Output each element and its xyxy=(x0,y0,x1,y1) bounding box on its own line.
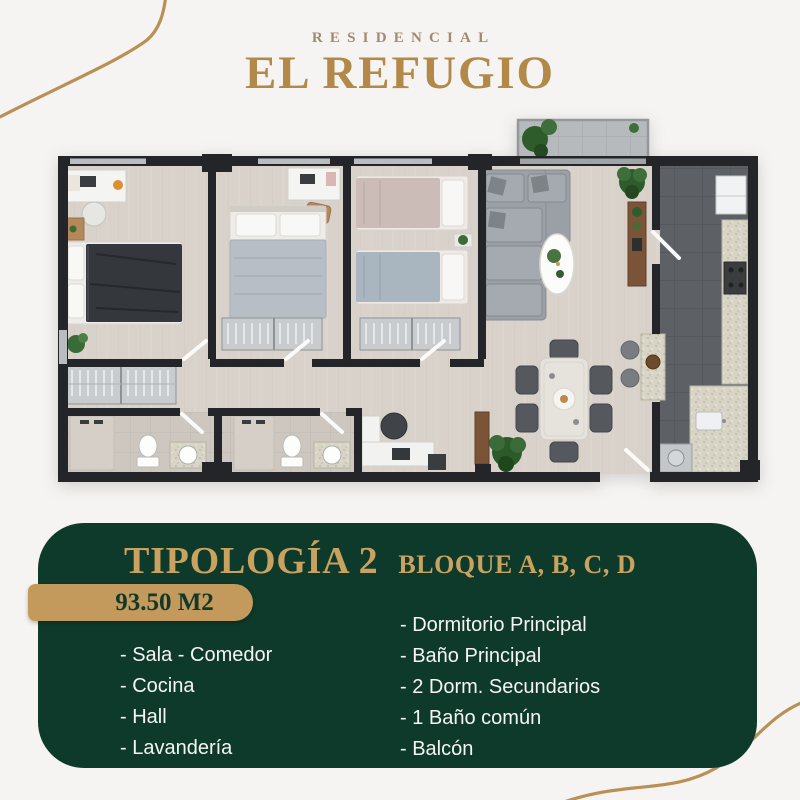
feature-item: - Cocina xyxy=(120,671,272,702)
info-card: TIPOLOGÍA 2 BLOQUE A, B, C, D 93.50 M2 -… xyxy=(38,523,757,768)
wood-panel xyxy=(475,412,489,464)
fridge xyxy=(716,176,746,214)
feature-item: - Dormitorio Principal xyxy=(400,610,600,641)
logo-subtitle: RESIDENCIAL xyxy=(0,30,800,47)
stove xyxy=(724,262,746,294)
master-bed xyxy=(64,242,182,324)
card-title-row: TIPOLOGÍA 2 BLOQUE A, B, C, D xyxy=(124,539,636,583)
toilet xyxy=(283,435,301,457)
desk-chair xyxy=(82,202,106,226)
logo-title: EL REFUGIO xyxy=(0,49,800,98)
console xyxy=(628,202,646,286)
feature-item: - 1 Baño común xyxy=(400,703,600,734)
bedroom-3 xyxy=(356,176,472,350)
feature-item: - Baño Principal xyxy=(400,641,600,672)
twin-bed-a xyxy=(356,176,468,230)
block-subtitle: BLOQUE A, B, C, D xyxy=(398,550,636,580)
shower xyxy=(70,416,114,470)
logo: RESIDENCIAL EL REFUGIO xyxy=(0,30,800,98)
area-badge: 93.50 M2 xyxy=(28,584,253,621)
bed xyxy=(230,206,326,318)
closet xyxy=(360,318,460,350)
closet xyxy=(222,318,322,350)
typology-title: TIPOLOGÍA 2 xyxy=(124,539,378,583)
features-list-left: - Sala - Comedor - Cocina - Hall - Lavan… xyxy=(120,640,272,764)
office-chair xyxy=(381,413,407,439)
feature-item: - Hall xyxy=(120,702,272,733)
counter xyxy=(722,220,748,384)
feature-item: - 2 Dorm. Secundarios xyxy=(400,672,600,703)
sink xyxy=(696,412,722,430)
flyer-page: { "page": { "background": "#f5f4f2", "de… xyxy=(0,0,800,800)
toilet xyxy=(139,435,157,457)
feature-item: - Sala - Comedor xyxy=(120,640,272,671)
features-list-right: - Dormitorio Principal - Baño Principal … xyxy=(400,610,600,765)
master-closet xyxy=(66,364,176,404)
feature-item: - Lavandería xyxy=(120,733,272,764)
balcony xyxy=(518,119,648,162)
coffee-table xyxy=(540,234,574,294)
floor-plan xyxy=(30,112,770,492)
shower xyxy=(234,416,274,470)
twin-bed-b xyxy=(356,250,468,304)
feature-item: - Balcón xyxy=(400,734,600,765)
